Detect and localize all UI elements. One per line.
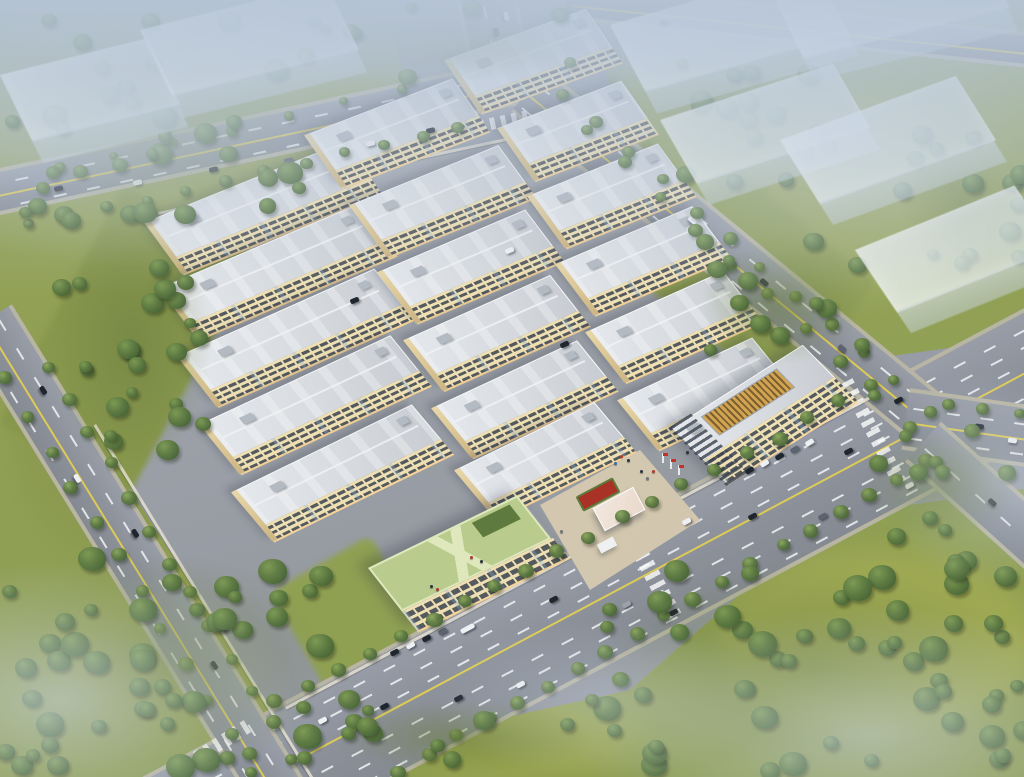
tree bbox=[120, 205, 141, 223]
tree bbox=[94, 60, 112, 76]
tree bbox=[165, 693, 182, 708]
tree bbox=[473, 711, 495, 730]
tree bbox=[90, 516, 104, 528]
lane-marking bbox=[0, 72, 519, 188]
tree bbox=[730, 295, 749, 312]
factory-roof bbox=[445, 9, 612, 100]
factory-building bbox=[200, 335, 431, 473]
tree bbox=[833, 590, 850, 605]
factory-roof bbox=[200, 335, 420, 461]
factory-end-wall bbox=[349, 203, 392, 257]
factory-roof bbox=[556, 206, 721, 302]
factory-building bbox=[160, 204, 396, 339]
factory-end-wall bbox=[231, 490, 277, 542]
tree bbox=[739, 93, 758, 110]
stair-bulkhead bbox=[709, 281, 723, 292]
tree bbox=[23, 219, 34, 229]
tree bbox=[809, 297, 824, 310]
roof-skylight-stripes bbox=[180, 270, 403, 392]
tree bbox=[72, 277, 87, 290]
mist-patch bbox=[870, 370, 1024, 590]
tree bbox=[130, 649, 155, 671]
pedestrian bbox=[560, 530, 563, 533]
car bbox=[504, 246, 514, 254]
factory-roof bbox=[145, 141, 372, 260]
tree bbox=[331, 663, 346, 676]
road-network-layer bbox=[0, 0, 1024, 777]
car bbox=[437, 627, 447, 635]
industrial-site-pad bbox=[0, 0, 1024, 777]
stair-bulkhead bbox=[511, 219, 525, 229]
tree bbox=[696, 234, 713, 249]
rooftop-unit bbox=[184, 213, 201, 225]
tree bbox=[1010, 197, 1024, 213]
tree bbox=[128, 357, 146, 373]
tree bbox=[134, 701, 153, 717]
tree bbox=[148, 143, 173, 165]
factory-roof bbox=[350, 145, 526, 243]
roof-skylight-stripes bbox=[307, 80, 479, 173]
tree bbox=[168, 138, 178, 147]
tree bbox=[571, 662, 585, 675]
tree bbox=[154, 279, 176, 299]
car bbox=[421, 634, 431, 642]
tree bbox=[795, 142, 815, 159]
tree bbox=[823, 736, 839, 750]
tree bbox=[560, 718, 575, 731]
tree bbox=[676, 166, 695, 183]
tree bbox=[714, 605, 740, 628]
tree bbox=[630, 627, 645, 640]
rooftop-unit bbox=[199, 278, 216, 290]
tree bbox=[458, 595, 472, 607]
tree bbox=[166, 343, 187, 362]
factory-facade-windows bbox=[172, 178, 383, 275]
tree bbox=[36, 712, 64, 737]
flag-pole bbox=[662, 453, 664, 463]
flag-pole bbox=[678, 465, 680, 475]
ghost-front-face bbox=[696, 126, 880, 205]
site-lawn-strip bbox=[270, 535, 435, 705]
tree bbox=[54, 162, 66, 173]
tree bbox=[924, 406, 937, 417]
tree bbox=[354, 719, 369, 732]
tree bbox=[104, 430, 117, 441]
pedestrian bbox=[627, 459, 630, 462]
tree bbox=[890, 474, 903, 486]
car bbox=[284, 157, 294, 163]
tree bbox=[184, 318, 196, 329]
roof-skylight-stripes bbox=[147, 143, 371, 259]
factory-roof bbox=[498, 81, 648, 167]
tree bbox=[728, 68, 742, 80]
lawn-patch bbox=[400, 695, 640, 777]
stair-bulkhead bbox=[644, 153, 658, 163]
tree bbox=[292, 182, 306, 195]
tree bbox=[338, 690, 360, 709]
roof-skylight-stripes bbox=[434, 342, 606, 444]
tree bbox=[848, 636, 865, 651]
factory-building bbox=[305, 78, 489, 187]
tree bbox=[602, 603, 617, 616]
roof-ridge-line bbox=[638, 357, 761, 415]
tree bbox=[887, 528, 906, 545]
tree bbox=[297, 48, 314, 63]
car bbox=[39, 385, 48, 395]
tree bbox=[430, 739, 445, 753]
dormitory-courtyard-louvers bbox=[701, 368, 796, 436]
car bbox=[744, 466, 754, 475]
tree bbox=[864, 379, 878, 391]
tree bbox=[212, 608, 237, 630]
lawn-patch bbox=[685, 105, 1015, 295]
tree bbox=[46, 166, 61, 179]
tree bbox=[816, 299, 837, 317]
tree bbox=[723, 232, 738, 245]
tree bbox=[462, 0, 482, 17]
stair-bulkhead bbox=[396, 416, 410, 427]
car bbox=[559, 340, 569, 348]
ghost-front-face bbox=[171, 48, 367, 118]
tree bbox=[618, 156, 632, 169]
factory-end-wall bbox=[377, 270, 421, 323]
tree bbox=[1013, 721, 1024, 741]
lane-marking bbox=[157, 342, 1024, 777]
tree bbox=[0, 744, 15, 761]
tree bbox=[213, 618, 227, 630]
red-flag bbox=[663, 453, 668, 456]
tree bbox=[589, 116, 603, 128]
pedestrian bbox=[436, 588, 439, 591]
tree bbox=[2, 585, 17, 598]
car bbox=[893, 396, 903, 404]
center-line-yellow bbox=[911, 423, 1024, 446]
tree bbox=[189, 603, 205, 617]
factory-building bbox=[445, 9, 622, 113]
tree bbox=[657, 174, 668, 184]
tree bbox=[293, 724, 322, 749]
factory-building bbox=[556, 206, 731, 315]
stair-bulkhead bbox=[536, 285, 550, 296]
tree bbox=[732, 621, 753, 639]
tree bbox=[984, 615, 1003, 632]
factory-facade-windows bbox=[432, 311, 591, 392]
tree bbox=[789, 291, 802, 302]
rooftop-unit bbox=[556, 191, 573, 203]
tree bbox=[109, 152, 118, 160]
car bbox=[660, 20, 669, 25]
tree bbox=[226, 654, 238, 665]
atmosphere-haze-layer bbox=[0, 0, 1024, 777]
roof-skylight-stripes bbox=[352, 146, 525, 242]
tree bbox=[1002, 174, 1023, 193]
tree bbox=[688, 224, 703, 237]
roof-ridge-line bbox=[424, 295, 558, 356]
tree bbox=[803, 524, 818, 537]
tree bbox=[742, 557, 758, 571]
car bbox=[975, 423, 985, 429]
factory-end-wall bbox=[403, 338, 448, 391]
stair-bulkhead bbox=[608, 90, 622, 100]
roof-skylight-stripes bbox=[234, 406, 441, 528]
office-facade-windows bbox=[402, 538, 569, 633]
tree bbox=[104, 433, 123, 450]
tree bbox=[168, 407, 190, 427]
tree bbox=[126, 387, 138, 398]
ghost-roof bbox=[660, 64, 870, 184]
lawn-patch bbox=[10, 300, 230, 560]
tree bbox=[180, 186, 191, 196]
factory-facade-windows bbox=[229, 370, 432, 475]
tree bbox=[56, 123, 71, 136]
factory-roof bbox=[586, 271, 752, 369]
ghost-building bbox=[855, 186, 1024, 333]
tree bbox=[61, 632, 89, 657]
aerial-industrial-park-rendering bbox=[0, 0, 1024, 777]
lane-marking bbox=[539, 86, 948, 423]
roof-ridge-line bbox=[452, 360, 585, 423]
tree bbox=[100, 86, 120, 103]
factory-building bbox=[618, 337, 792, 449]
tree bbox=[301, 680, 316, 693]
stair-bulkhead bbox=[438, 88, 452, 98]
roof-ridge-line bbox=[606, 291, 732, 348]
tree bbox=[46, 447, 59, 458]
flag-pole bbox=[670, 459, 672, 469]
tree bbox=[42, 362, 55, 373]
tree bbox=[214, 576, 239, 598]
tree bbox=[750, 315, 771, 334]
tree bbox=[178, 657, 194, 671]
forest-ground bbox=[862, 430, 1022, 540]
tree bbox=[345, 714, 362, 729]
entrance-gate-canopy bbox=[593, 487, 646, 532]
roof-skylight-stripes bbox=[162, 205, 385, 324]
rooftop-unit bbox=[485, 461, 502, 473]
tree bbox=[297, 751, 313, 765]
factory-facade-windows bbox=[405, 246, 565, 325]
tree bbox=[831, 394, 845, 406]
tree bbox=[760, 762, 780, 777]
car bbox=[210, 660, 219, 670]
car bbox=[843, 447, 853, 455]
tree bbox=[142, 196, 153, 206]
pedestrian bbox=[620, 455, 623, 458]
tree bbox=[670, 624, 689, 641]
tree bbox=[741, 566, 759, 582]
tree bbox=[228, 591, 242, 603]
site-lawn-strip bbox=[634, 161, 876, 398]
tree bbox=[740, 446, 755, 459]
roof-ridge-line bbox=[516, 101, 629, 146]
tree bbox=[146, 148, 159, 159]
factory-roof bbox=[528, 144, 686, 235]
lawn-patch bbox=[50, 580, 310, 740]
car bbox=[688, 216, 698, 225]
lawn-base-layer bbox=[0, 0, 1024, 777]
forest-ground bbox=[700, 235, 865, 365]
tree bbox=[899, 430, 912, 442]
road-0 bbox=[129, 296, 1024, 777]
tree bbox=[1010, 165, 1024, 184]
factory-end-wall bbox=[527, 194, 570, 248]
tree bbox=[909, 464, 928, 481]
tree bbox=[357, 717, 378, 735]
red-flag bbox=[679, 465, 684, 468]
tree bbox=[740, 681, 754, 694]
tree bbox=[154, 623, 166, 634]
tree bbox=[746, 130, 763, 145]
tree bbox=[219, 751, 234, 765]
factory-roof bbox=[618, 337, 782, 436]
lawn-patch bbox=[720, 550, 1024, 730]
tree bbox=[947, 554, 965, 570]
tree bbox=[821, 138, 837, 152]
ghost-roof bbox=[775, 0, 1009, 59]
tree bbox=[64, 214, 76, 224]
tree bbox=[944, 558, 969, 580]
factory-facade-windows bbox=[461, 376, 619, 460]
tree bbox=[726, 68, 742, 82]
tree bbox=[962, 174, 984, 194]
tree bbox=[61, 212, 81, 229]
tree bbox=[266, 715, 281, 728]
tree bbox=[754, 262, 765, 272]
ghost-building bbox=[0, 39, 189, 164]
tree bbox=[994, 566, 1018, 587]
tree bbox=[277, 162, 303, 185]
tree bbox=[751, 706, 778, 730]
tree bbox=[715, 576, 729, 588]
car bbox=[230, 726, 239, 736]
ghost-front-face bbox=[645, 32, 859, 113]
tree bbox=[903, 421, 917, 434]
car bbox=[760, 278, 770, 287]
factory-facade-windows bbox=[555, 180, 697, 249]
tree bbox=[266, 694, 282, 708]
road-1 bbox=[0, 304, 305, 777]
tree bbox=[362, 705, 374, 716]
tree bbox=[106, 397, 129, 417]
tree bbox=[962, 248, 978, 262]
forest-ground bbox=[600, 560, 1024, 775]
tree bbox=[226, 115, 242, 129]
tree bbox=[36, 182, 50, 194]
tree bbox=[938, 524, 952, 536]
tree bbox=[748, 631, 778, 657]
tree bbox=[339, 147, 350, 157]
tree bbox=[944, 615, 963, 632]
factory-facade-windows bbox=[261, 439, 454, 542]
tree bbox=[339, 97, 349, 106]
tree bbox=[726, 174, 743, 189]
tree bbox=[742, 65, 761, 81]
tree bbox=[397, 84, 408, 93]
tree bbox=[83, 651, 110, 675]
tree bbox=[861, 488, 877, 502]
tree bbox=[994, 748, 1011, 763]
car bbox=[54, 185, 64, 191]
tree bbox=[426, 613, 443, 628]
tree bbox=[941, 712, 964, 733]
factory-roof bbox=[432, 340, 607, 444]
red-flag bbox=[671, 459, 676, 462]
tree bbox=[707, 261, 727, 279]
tree bbox=[129, 643, 157, 667]
tree bbox=[79, 361, 91, 372]
tree bbox=[342, 24, 359, 39]
tree bbox=[390, 766, 405, 777]
stair-bulkhead bbox=[563, 351, 577, 362]
lane-marking bbox=[0, 334, 263, 777]
tree bbox=[11, 756, 33, 775]
rooftop-unit bbox=[435, 333, 452, 345]
dormitory-building bbox=[672, 345, 857, 484]
pedestrian bbox=[686, 451, 689, 454]
office-green-roof bbox=[368, 495, 551, 611]
factory-facade-windows bbox=[187, 240, 397, 340]
tree bbox=[551, 7, 569, 23]
road-3 bbox=[511, 69, 963, 456]
tree bbox=[117, 339, 139, 359]
factory-roof bbox=[160, 204, 386, 326]
factory-end-wall bbox=[159, 286, 203, 339]
factory-building bbox=[350, 145, 536, 257]
roof-garden-dark-section bbox=[472, 504, 521, 537]
road-intersection bbox=[831, 337, 1024, 513]
ghost-building bbox=[610, 0, 859, 113]
tree bbox=[994, 630, 1009, 644]
lane-marking bbox=[150, 329, 1024, 777]
mist-patch bbox=[110, 0, 750, 120]
car bbox=[515, 680, 525, 688]
roof-skylight-stripes bbox=[202, 336, 419, 459]
tree bbox=[854, 338, 870, 352]
tree bbox=[264, 59, 289, 81]
tree bbox=[1014, 409, 1024, 418]
rooftop-unit bbox=[463, 400, 480, 412]
tree bbox=[723, 255, 735, 266]
crosswalk bbox=[467, 109, 532, 134]
tree bbox=[91, 720, 106, 734]
mist-patch bbox=[570, 605, 1024, 777]
lane-marking bbox=[0, 319, 287, 777]
tree bbox=[73, 34, 92, 51]
tree bbox=[581, 125, 593, 136]
tree bbox=[162, 574, 182, 591]
rooftop-unit bbox=[336, 130, 353, 141]
rooftop-unit bbox=[686, 422, 703, 435]
tree bbox=[585, 694, 599, 706]
center-line-yellow bbox=[572, 5, 1024, 55]
tree bbox=[84, 604, 98, 616]
factory-facade-windows bbox=[470, 46, 622, 114]
tree bbox=[918, 454, 934, 468]
buildings-layer bbox=[0, 0, 1024, 777]
ghost-roof bbox=[140, 0, 359, 96]
tree bbox=[622, 146, 635, 157]
factory-end-wall bbox=[431, 406, 477, 458]
tree bbox=[869, 455, 889, 472]
tree bbox=[118, 79, 135, 94]
road-intersection bbox=[394, 0, 617, 159]
tree bbox=[195, 417, 211, 431]
tree bbox=[781, 654, 797, 668]
tree bbox=[676, 58, 688, 69]
car bbox=[317, 716, 327, 724]
factory-roof bbox=[404, 275, 579, 377]
rooftop-unit bbox=[238, 412, 255, 424]
